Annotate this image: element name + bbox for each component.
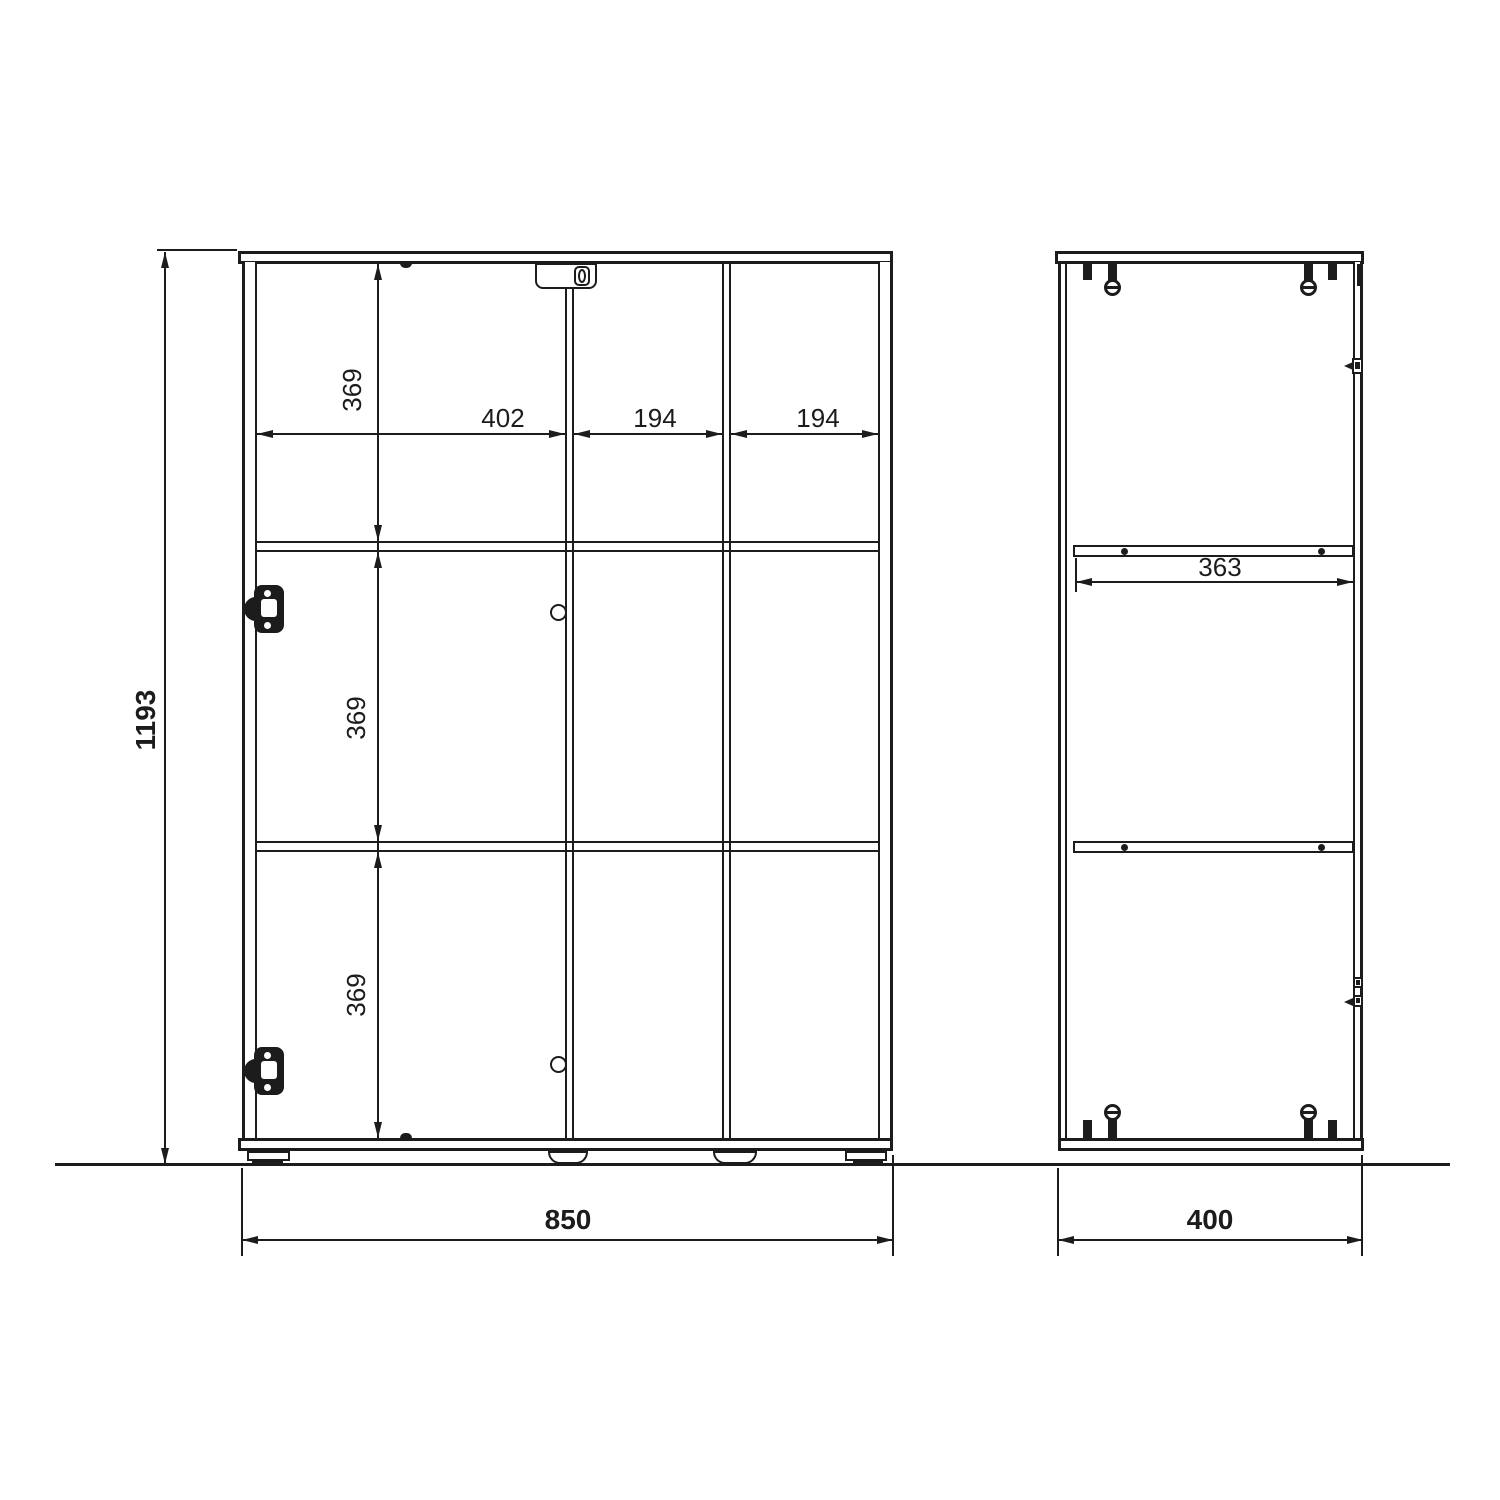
front-shelf-upper	[257, 541, 878, 552]
dim-label-compartment-1: 402	[463, 404, 543, 432]
front-shelf-lower	[257, 841, 878, 852]
knob-hole-upper	[550, 604, 567, 621]
peg	[1083, 262, 1092, 280]
peg	[1328, 262, 1337, 280]
cam-bolt-stem	[1108, 1119, 1117, 1138]
front-divider-center	[565, 262, 574, 1140]
knob-hole-lower	[550, 1056, 567, 1073]
shelf-screw	[1121, 844, 1128, 851]
peg	[1083, 1120, 1092, 1138]
cam-bolt-slot	[1303, 286, 1314, 289]
dowel-mark-bottom	[400, 1133, 412, 1138]
ground-line	[55, 1163, 1450, 1166]
dim-label-height: 1193	[126, 660, 166, 780]
dim-label-compartment-3: 194	[778, 404, 858, 432]
front-left-side-panel	[242, 262, 257, 1140]
shelf-screw	[1318, 548, 1325, 555]
side-back-edge-inner	[1065, 262, 1067, 1138]
front-divider-right	[722, 262, 731, 1140]
dim-label-compartment-2: 194	[615, 404, 695, 432]
dowel-mark-top	[400, 263, 412, 268]
technical-drawing: 1193 369 369 369 402 194 194 850	[0, 0, 1500, 1500]
shelf-screw	[1318, 844, 1325, 851]
side-top-panel	[1055, 251, 1364, 264]
dim-label-depth: 400	[1170, 1206, 1250, 1234]
side-door-lock-mark	[1357, 264, 1361, 286]
front-right-side-panel	[878, 262, 893, 1140]
dim-label-row-1: 369	[332, 340, 372, 440]
side-back-edge-outer	[1058, 262, 1061, 1138]
dim-label-shelf-depth: 363	[1180, 553, 1260, 581]
peg	[1328, 1120, 1337, 1138]
cam-bolt-slot	[1303, 1111, 1314, 1114]
dim-label-width: 850	[528, 1206, 608, 1234]
cam-bolt-slot	[1107, 1111, 1118, 1114]
dim-label-row-2: 369	[336, 668, 376, 768]
side-shelf-lower	[1073, 841, 1354, 853]
shelf-screw	[1121, 548, 1128, 555]
cam-bolt-slot	[1107, 286, 1118, 289]
dim-label-row-3: 369	[336, 945, 376, 1045]
side-bottom-panel	[1058, 1138, 1364, 1151]
front-bottom-panel	[238, 1138, 893, 1151]
cam-bolt-stem	[1304, 1119, 1313, 1138]
keyhole-slot-icon	[578, 269, 586, 283]
